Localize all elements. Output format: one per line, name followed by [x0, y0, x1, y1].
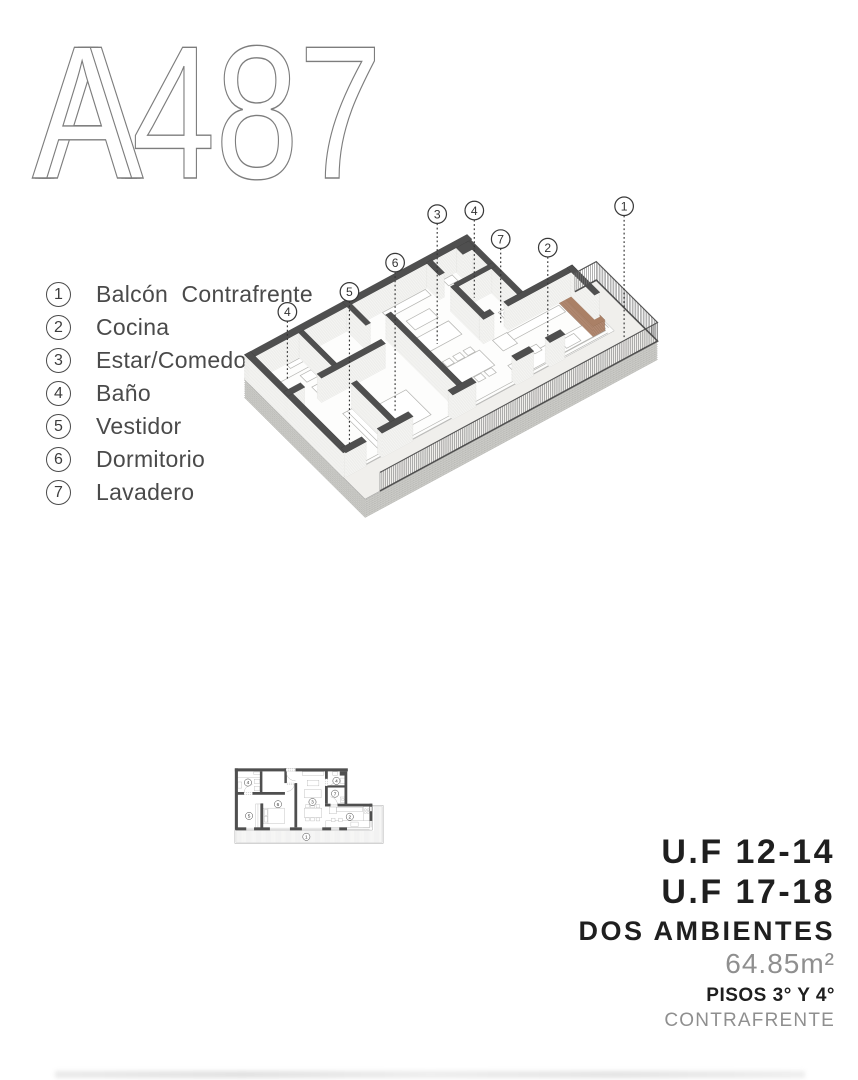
- plan-callout-2-6: 2: [346, 813, 353, 820]
- cropped-footer-text: [55, 1071, 805, 1078]
- legend-number-badge: 4: [46, 381, 71, 406]
- plan-callout-4-1: 4: [333, 777, 340, 784]
- svg-text:7: 7: [334, 791, 337, 797]
- plan-callout-7-2: 7: [331, 790, 338, 797]
- svg-text:5: 5: [248, 814, 251, 820]
- uf-numbers-2: U.F 17-18: [578, 872, 835, 912]
- svg-text:3: 3: [311, 800, 314, 806]
- unit-orientation: CONTRAFRENTE: [578, 1008, 835, 1033]
- legend-item-label: Baño: [96, 380, 151, 407]
- legend-number-badge: 5: [46, 414, 71, 439]
- svg-text:7: 7: [497, 232, 504, 246]
- svg-text:2: 2: [348, 814, 351, 820]
- plan-callout-6-3: 6: [274, 801, 281, 808]
- plan-furniture: [237, 772, 371, 830]
- unit-info-panel: U.F 12-14 U.F 17-18 DOS AMBIENTES 64.85m…: [578, 832, 835, 1033]
- plan-callout-4-0: 4: [244, 779, 251, 786]
- legend-item-label: Cocina: [96, 314, 169, 341]
- unit-type: DOS AMBIENTES: [578, 914, 835, 948]
- legend-number-badge: 3: [46, 348, 71, 373]
- uf-numbers-1: U.F 12-14: [578, 832, 835, 872]
- svg-text:1: 1: [621, 200, 628, 214]
- unit-code-logo: A A A A487: [26, 28, 406, 198]
- svg-text:4: 4: [247, 780, 250, 786]
- legend-item-label: Vestidor: [96, 413, 182, 440]
- unit-floors: PISOS 3° Y 4°: [578, 983, 835, 1008]
- page-title: A487: [32, 28, 382, 198]
- legend-item-label: Dormitorio: [96, 446, 205, 473]
- isometric-floorplan: 45634721: [225, 192, 857, 670]
- svg-text:6: 6: [277, 802, 280, 808]
- legend-number-badge: 6: [46, 447, 71, 472]
- legend-number-badge: 2: [46, 315, 71, 340]
- svg-text:6: 6: [392, 256, 399, 270]
- svg-text:5: 5: [346, 285, 353, 299]
- plan-callout-1-7: 1: [303, 833, 310, 840]
- svg-text:4: 4: [471, 204, 478, 218]
- plan-callout-5-5: 5: [245, 812, 252, 819]
- legend-item-label: Lavadero: [96, 479, 194, 506]
- svg-text:1: 1: [305, 834, 308, 840]
- svg-text:3: 3: [434, 207, 441, 221]
- floorplan-2d: 44763521: [25, 765, 610, 1060]
- plan-sheet: A A A A487 1 Balcón Contrafrente 2 Cocin…: [0, 0, 858, 1080]
- legend-number-badge: 1: [46, 282, 71, 307]
- legend-number-badge: 7: [46, 480, 71, 505]
- svg-text:4: 4: [335, 779, 338, 785]
- svg-text:2: 2: [544, 241, 551, 255]
- plan-callout-3-4: 3: [309, 798, 316, 805]
- svg-text:4: 4: [284, 305, 291, 319]
- unit-area: 64.85m²: [578, 948, 835, 980]
